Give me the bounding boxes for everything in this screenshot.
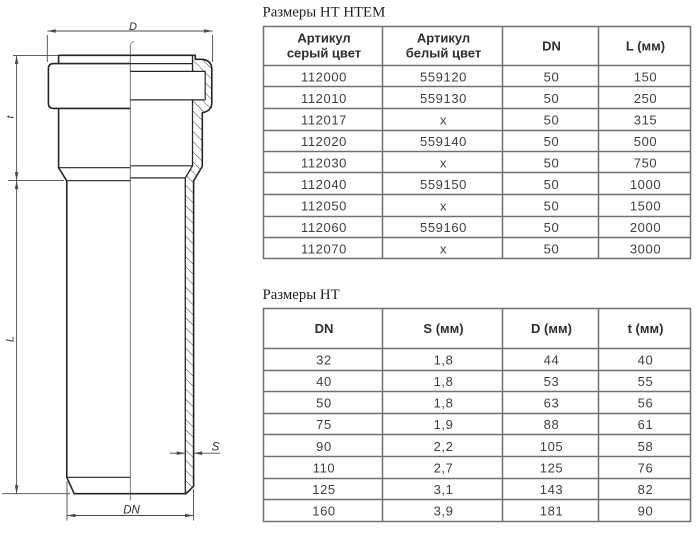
svg-text:x: x — [440, 155, 447, 170]
svg-text:76: 76 — [638, 460, 654, 475]
svg-text:2,2: 2,2 — [434, 439, 454, 454]
svg-text:1,8: 1,8 — [434, 396, 454, 411]
svg-text:белый цвет: белый цвет — [406, 46, 481, 61]
svg-text:t (мм): t (мм) — [628, 321, 664, 336]
svg-text:50: 50 — [544, 220, 560, 235]
svg-text:88: 88 — [544, 417, 560, 432]
svg-text:L (мм): L (мм) — [626, 39, 665, 54]
svg-text:75: 75 — [316, 417, 332, 432]
svg-text:1500: 1500 — [630, 198, 661, 213]
svg-text:112000: 112000 — [301, 69, 347, 84]
svg-text:50: 50 — [544, 177, 560, 192]
svg-text:559150: 559150 — [420, 177, 467, 192]
svg-text:559130: 559130 — [420, 91, 467, 106]
svg-text:58: 58 — [638, 439, 654, 454]
svg-text:t: t — [4, 114, 16, 118]
svg-text:315: 315 — [634, 112, 658, 127]
svg-text:112060: 112060 — [301, 220, 347, 235]
svg-text:112017: 112017 — [301, 112, 347, 127]
svg-text:1000: 1000 — [630, 177, 661, 192]
svg-text:559120: 559120 — [420, 69, 467, 84]
svg-text:181: 181 — [540, 504, 564, 519]
svg-text:160: 160 — [312, 504, 336, 519]
svg-text:50: 50 — [544, 91, 560, 106]
svg-text:Артикул: Артикул — [417, 30, 470, 45]
svg-text:50: 50 — [544, 134, 560, 149]
svg-text:44: 44 — [544, 352, 560, 367]
svg-text:112040: 112040 — [301, 177, 347, 192]
svg-text:3,1: 3,1 — [434, 482, 454, 497]
svg-text:112050: 112050 — [301, 198, 347, 213]
svg-text:x: x — [440, 112, 447, 127]
svg-text:3,9: 3,9 — [434, 504, 454, 519]
svg-text:90: 90 — [638, 504, 654, 519]
svg-text:2,7: 2,7 — [434, 460, 454, 475]
svg-text:D (мм): D (мм) — [531, 321, 572, 336]
svg-text:S (мм): S (мм) — [423, 321, 463, 336]
svg-text:143: 143 — [540, 482, 564, 497]
svg-text:2000: 2000 — [630, 220, 661, 235]
svg-text:112010: 112010 — [301, 91, 347, 106]
svg-text:50: 50 — [544, 112, 560, 127]
svg-text:90: 90 — [316, 439, 332, 454]
svg-text:125: 125 — [540, 460, 564, 475]
svg-text:40: 40 — [316, 374, 332, 389]
svg-text:D: D — [129, 21, 137, 33]
svg-text:L: L — [4, 336, 16, 342]
svg-text:x: x — [440, 241, 447, 256]
svg-text:50: 50 — [544, 69, 560, 84]
svg-text:50: 50 — [316, 396, 332, 411]
svg-text:Размеры НТ НТЕМ: Размеры НТ НТЕМ — [263, 5, 386, 21]
svg-text:53: 53 — [544, 374, 560, 389]
svg-text:S: S — [212, 442, 220, 454]
svg-text:125: 125 — [312, 482, 336, 497]
svg-text:Размеры НТ: Размеры НТ — [263, 287, 340, 303]
svg-text:559140: 559140 — [420, 134, 467, 149]
svg-text:250: 250 — [634, 91, 658, 106]
svg-text:32: 32 — [316, 352, 332, 367]
svg-text:50: 50 — [544, 241, 560, 256]
svg-text:3000: 3000 — [630, 241, 661, 256]
svg-text:150: 150 — [634, 69, 658, 84]
svg-text:112030: 112030 — [301, 155, 347, 170]
svg-text:750: 750 — [634, 155, 658, 170]
svg-text:серый цвет: серый цвет — [287, 46, 361, 61]
svg-text:55: 55 — [638, 374, 654, 389]
svg-text:1,8: 1,8 — [434, 374, 454, 389]
svg-text:DN: DN — [542, 39, 561, 54]
svg-text:105: 105 — [540, 439, 564, 454]
svg-text:110: 110 — [313, 460, 336, 475]
svg-text:63: 63 — [544, 396, 560, 411]
svg-text:112070: 112070 — [301, 241, 347, 256]
svg-text:56: 56 — [638, 396, 654, 411]
svg-text:Артикул: Артикул — [297, 30, 350, 45]
svg-text:DN: DN — [315, 321, 334, 336]
svg-text:1,8: 1,8 — [434, 352, 454, 367]
svg-text:x: x — [440, 198, 447, 213]
svg-text:50: 50 — [544, 155, 560, 170]
svg-text:1,9: 1,9 — [434, 417, 454, 432]
svg-text:112020: 112020 — [301, 134, 347, 149]
svg-text:DN: DN — [123, 505, 140, 517]
svg-text:559160: 559160 — [420, 220, 467, 235]
svg-text:500: 500 — [634, 134, 658, 149]
svg-text:40: 40 — [638, 352, 654, 367]
svg-text:50: 50 — [544, 198, 560, 213]
svg-text:61: 61 — [638, 417, 654, 432]
svg-text:82: 82 — [638, 482, 654, 497]
